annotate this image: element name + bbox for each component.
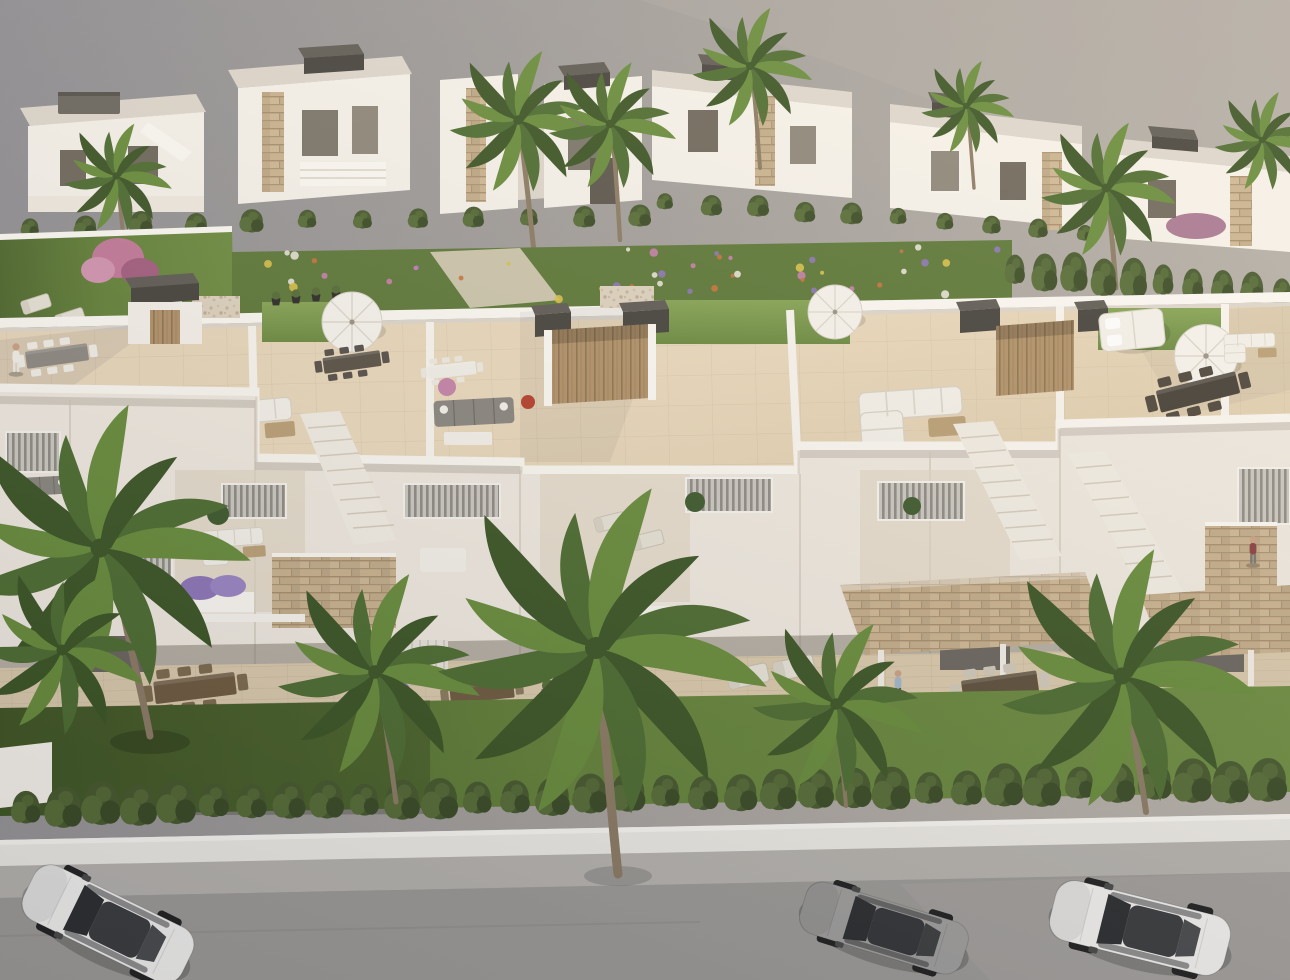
light-overlays xyxy=(0,0,1290,980)
architectural-render xyxy=(0,0,1290,980)
